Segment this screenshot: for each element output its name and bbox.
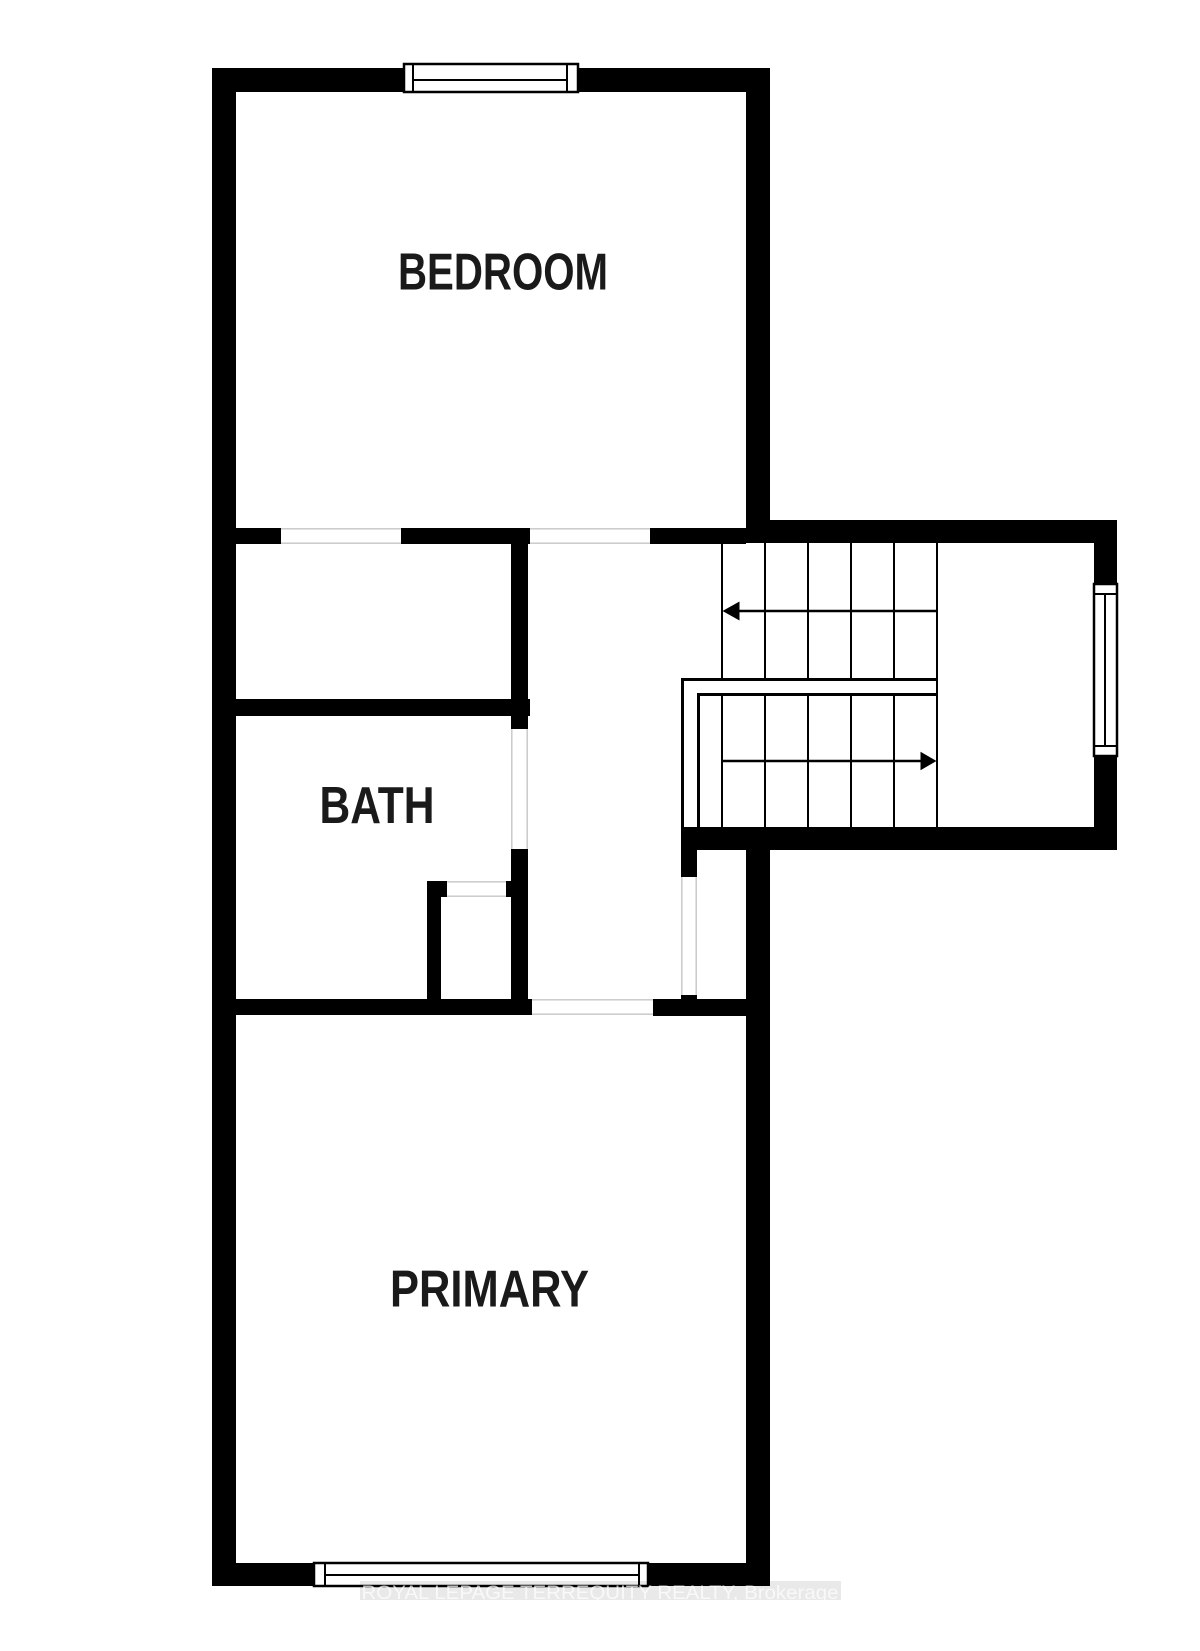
svg-text:BEDROOM: BEDROOM [398, 244, 608, 302]
svg-text:BATH: BATH [320, 777, 435, 835]
svg-text:ROYAL LEPAGE TERREQUITY REALTY: ROYAL LEPAGE TERREQUITY REALTY, Brokerag… [362, 1582, 839, 1604]
svg-text:PRIMARY: PRIMARY [390, 1261, 589, 1319]
